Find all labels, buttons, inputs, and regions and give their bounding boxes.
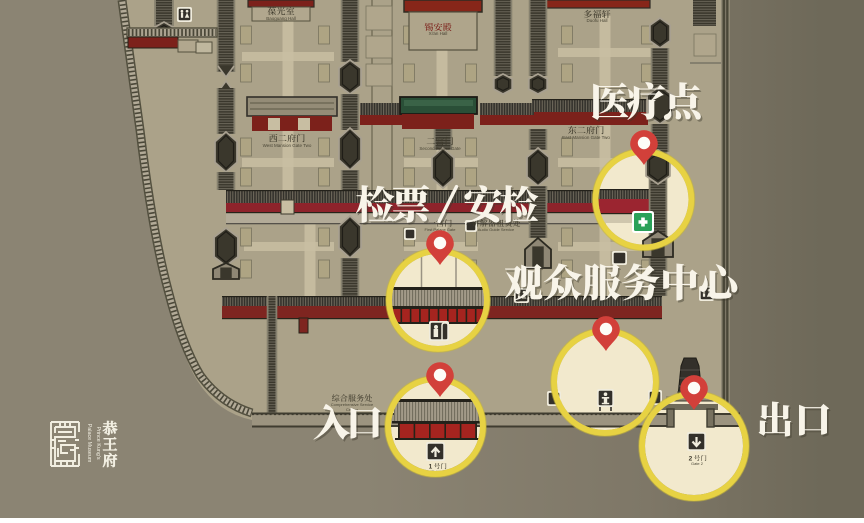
svg-text:Duofu Hall: Duofu Hall bbox=[586, 18, 607, 23]
svg-text:Second Palace Gate: Second Palace Gate bbox=[419, 146, 461, 151]
svg-text:Palace Museum: Palace Museum bbox=[86, 424, 92, 463]
svg-text:Prince Kung's: Prince Kung's bbox=[95, 426, 101, 459]
svg-text:Xi'an Hall: Xi'an Hall bbox=[429, 31, 448, 36]
svg-text:East Mansion Gate Two: East Mansion Gate Two bbox=[562, 135, 610, 140]
svg-text:West Mansion Gate Two: West Mansion Gate Two bbox=[263, 143, 312, 148]
svg-text:Gate 2: Gate 2 bbox=[691, 461, 704, 466]
svg-text:Baoguang Hall: Baoguang Hall bbox=[266, 16, 296, 21]
svg-text:Audio Guide Service: Audio Guide Service bbox=[478, 227, 515, 232]
